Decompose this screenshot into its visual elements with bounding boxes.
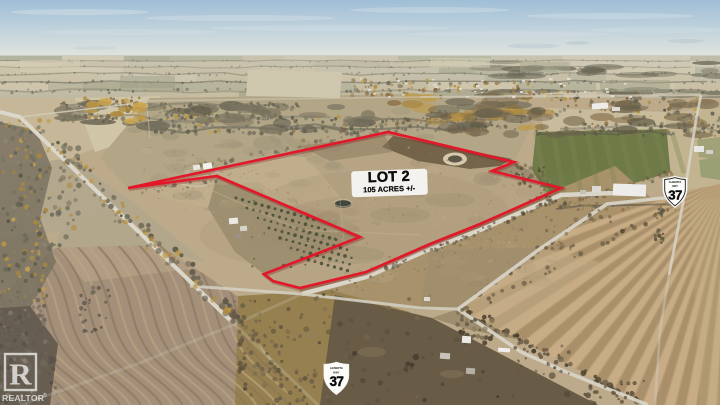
svg-text:R: R	[9, 357, 32, 392]
svg-text:105 ACRES +/-: 105 ACRES +/-	[363, 184, 416, 195]
svg-text:REALTOR: REALTOR	[2, 393, 45, 403]
svg-text:37: 37	[329, 374, 343, 389]
svg-text:37: 37	[668, 188, 682, 203]
svg-text:®: ®	[43, 392, 47, 399]
svg-text:ALBERTA: ALBERTA	[669, 180, 682, 184]
svg-text:ALBERTA: ALBERTA	[330, 366, 343, 370]
